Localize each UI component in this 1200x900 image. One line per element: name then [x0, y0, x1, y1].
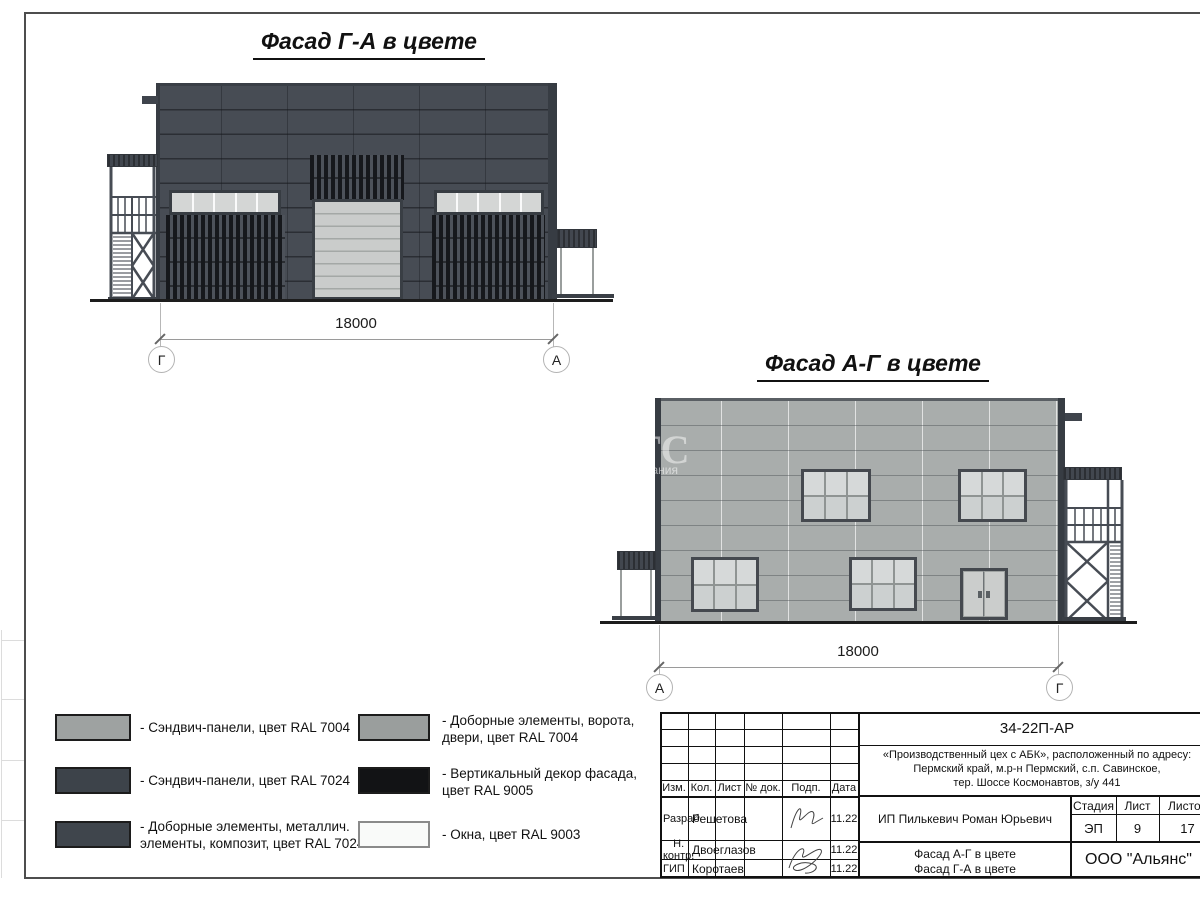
- legend-label-line: - Окна, цвет RAL 9003: [442, 826, 580, 843]
- window-pane: [694, 586, 713, 610]
- window-pane: [852, 585, 871, 608]
- tb-name: Решетова: [689, 798, 747, 840]
- legend-label-line: двери, цвет RAL 7004: [442, 729, 634, 746]
- dimension-value: 18000: [306, 315, 406, 332]
- window-pane: [522, 193, 541, 212]
- canopy-base: [552, 294, 614, 298]
- window-pane: [873, 560, 892, 583]
- corner-trim: [548, 83, 557, 302]
- sheet-frame-left: [24, 12, 26, 878]
- tb-sheet-label: Лист: [1116, 797, 1159, 814]
- facade-ga-title: Фасад Г-А в цвете: [253, 28, 485, 60]
- window-pane: [895, 560, 914, 583]
- legend-swatch-doors-ral7004: [358, 714, 430, 741]
- legend-swatch-ral9005: [358, 767, 430, 794]
- window-pane: [895, 585, 914, 608]
- margin-mark: [2, 760, 24, 761]
- window-pane: [437, 193, 456, 212]
- axis-marker-g: Г: [148, 346, 175, 373]
- door-leaf: [984, 571, 1005, 617]
- window-pane: [215, 193, 235, 212]
- axis-marker-a: А: [543, 346, 570, 373]
- window-band-left: [169, 190, 281, 215]
- window: [958, 469, 1027, 522]
- tb-role: ГИП: [660, 859, 691, 878]
- vertical-decor: [432, 215, 545, 300]
- tb-name: Коротаев: [689, 859, 752, 878]
- window-pane: [172, 193, 192, 212]
- margin-mark: [2, 820, 24, 821]
- window-pane: [1004, 497, 1024, 520]
- tb-sheet-value: 9: [1116, 815, 1159, 841]
- legend-label: - Доборные элементы, ворота, двери, цвет…: [442, 712, 634, 746]
- window-pane: [848, 472, 868, 495]
- legend-label-line: элементы, композит, цвет RAL 7024: [140, 835, 364, 852]
- entrance-canopy: [617, 551, 656, 570]
- margin-mark: [2, 699, 24, 700]
- window-pane: [237, 193, 257, 212]
- tb-col-izm: Изм.: [660, 780, 688, 796]
- legend-label: - Сэндвич-панели, цвет RAL 7024: [140, 772, 350, 789]
- roof-bracket: [1065, 413, 1082, 421]
- tb-date: 11.22: [830, 859, 858, 878]
- extension-line: [659, 625, 660, 680]
- window-pane: [737, 586, 756, 610]
- dimension-value: 18000: [808, 643, 908, 660]
- tb-project: «Производственный цех с АБК», расположен…: [858, 748, 1200, 790]
- window-pane: [961, 472, 981, 495]
- sectional-gate: [312, 199, 403, 300]
- ground-line: [90, 299, 613, 302]
- tb-col-data: Дата: [830, 780, 858, 796]
- tb-project-line: Пермский край, м.р-н Пермский, с.п. Сави…: [858, 762, 1200, 776]
- tb-project-line: тер. Шоссе Космонавтов, з/у 441: [858, 776, 1200, 790]
- legend-label-line: - Сэндвич-панели, цвет RAL 7024: [140, 772, 350, 789]
- extension-line: [553, 303, 554, 352]
- legend-label-line: - Доборные элементы, ворота,: [442, 712, 634, 729]
- legend-swatch-ral7004: [55, 714, 131, 741]
- tb-sheets-label: Листов: [1159, 797, 1200, 814]
- window-pane: [983, 497, 1003, 520]
- canopy-leg: [560, 248, 562, 296]
- tb-role: Разраб.: [660, 798, 691, 840]
- tb-company: ООО "Альянс": [1072, 843, 1200, 876]
- window-pane: [983, 472, 1003, 495]
- title-block: Изм. Кол. Лист № док. Подп. Дата Разраб.…: [660, 712, 1200, 878]
- window-pane: [848, 497, 868, 520]
- window-pane: [1004, 472, 1024, 495]
- window-pane: [694, 560, 713, 584]
- tb-client: ИП Пилькевич Роман Юрьевич: [860, 797, 1070, 841]
- legend-label-line: цвет RAL 9005: [442, 782, 637, 799]
- window-pane: [715, 560, 734, 584]
- window-pane: [961, 497, 981, 520]
- window-pane: [873, 585, 892, 608]
- window-pane: [258, 193, 278, 212]
- tb-sheets-value: 17: [1159, 815, 1200, 841]
- window-pane: [194, 193, 214, 212]
- legend-label: - Доборные элементы, металлич. элементы,…: [140, 818, 364, 852]
- window-pane: [826, 472, 846, 495]
- canopy-base: [612, 616, 660, 620]
- signature: [783, 798, 830, 840]
- ground-line: [600, 621, 1137, 624]
- tb-sheet-title: Фасад А-Г в цвете Фасад Г-А в цвете: [860, 847, 1070, 877]
- tb-project-line: «Производственный цех с АБК», расположен…: [858, 748, 1200, 762]
- tb-col-list: Лист: [715, 780, 744, 796]
- legend-label: - Окна, цвет RAL 9003: [442, 826, 580, 843]
- drawing-sheet: Фасад Г-А в цвете: [0, 0, 1200, 900]
- window-pane: [826, 497, 846, 520]
- window-pane: [458, 193, 477, 212]
- window-pane: [501, 193, 520, 212]
- dimension-line: [659, 667, 1058, 668]
- extension-line: [1058, 625, 1059, 680]
- tb-sheet-title-line: Фасад А-Г в цвете: [860, 847, 1070, 862]
- tb-col-doc: № док.: [744, 780, 782, 796]
- window: [801, 469, 871, 522]
- vertical-decor: [166, 215, 285, 300]
- window-band-right: [434, 190, 544, 215]
- window-pane: [852, 560, 871, 583]
- tb-col-kol: Кол.: [688, 780, 715, 796]
- window-pane: [804, 497, 824, 520]
- canopy-leg: [650, 570, 652, 619]
- door-leaf: [963, 571, 984, 617]
- axis-marker-g: Г: [1046, 674, 1073, 701]
- tb-sheet-title-line: Фасад Г-А в цвете: [860, 862, 1070, 877]
- roof-bracket: [142, 96, 158, 104]
- tb-col-podp: Подп.: [782, 780, 830, 796]
- tb-date: 11.22: [830, 840, 858, 859]
- axis-marker-a: А: [646, 674, 673, 701]
- canopy-leg: [620, 570, 622, 619]
- tb-name: Двоеглазов: [689, 840, 752, 859]
- stair-tower-canopy: [1063, 467, 1122, 480]
- legend-swatch-ral9003: [358, 821, 430, 848]
- facade-ag-title: Фасад А-Г в цвете: [757, 350, 989, 382]
- window: [849, 557, 917, 611]
- legend-label: - Вертикальный декор фасада, цвет RAL 90…: [442, 765, 637, 799]
- legend-label-line: - Вертикальный декор фасада,: [442, 765, 637, 782]
- sheet-frame-top: [24, 12, 1200, 14]
- dimension-line: [160, 339, 553, 340]
- legend-swatch-ral7024: [55, 767, 131, 794]
- signature: [783, 840, 830, 878]
- legend-label-line: - Доборные элементы, металлич.: [140, 818, 364, 835]
- legend-swatch-metal-ral7024: [55, 821, 131, 848]
- door-handle: [978, 591, 982, 598]
- tb-stage-label: Стадия: [1071, 797, 1116, 814]
- window: [691, 557, 759, 612]
- window-pane: [737, 560, 756, 584]
- legend-label-line: - Сэндвич-панели, цвет RAL 7004: [140, 719, 350, 736]
- window-pane: [804, 472, 824, 495]
- legend-label: - Сэндвич-панели, цвет RAL 7004: [140, 719, 350, 736]
- door-handle: [986, 591, 990, 598]
- double-door: [960, 568, 1008, 620]
- tb-stage-value: ЭП: [1071, 815, 1116, 841]
- margin-mark: [1, 630, 2, 878]
- tb-role: Н. контр.: [660, 840, 691, 859]
- watermark: пания: [645, 463, 678, 477]
- margin-mark: [2, 640, 24, 641]
- extension-line: [160, 303, 161, 352]
- stair-tower: [106, 167, 158, 303]
- vertical-decor: [310, 155, 404, 200]
- tb-date: 11.22: [830, 798, 858, 840]
- canopy-leg: [592, 248, 594, 296]
- tb-doc-number: 34-22П-АР: [858, 712, 1200, 745]
- stair-tower: [1062, 480, 1126, 625]
- window-pane: [479, 193, 498, 212]
- stair-tower-canopy: [107, 154, 158, 167]
- window-pane: [715, 586, 734, 610]
- entrance-canopy: [557, 229, 597, 248]
